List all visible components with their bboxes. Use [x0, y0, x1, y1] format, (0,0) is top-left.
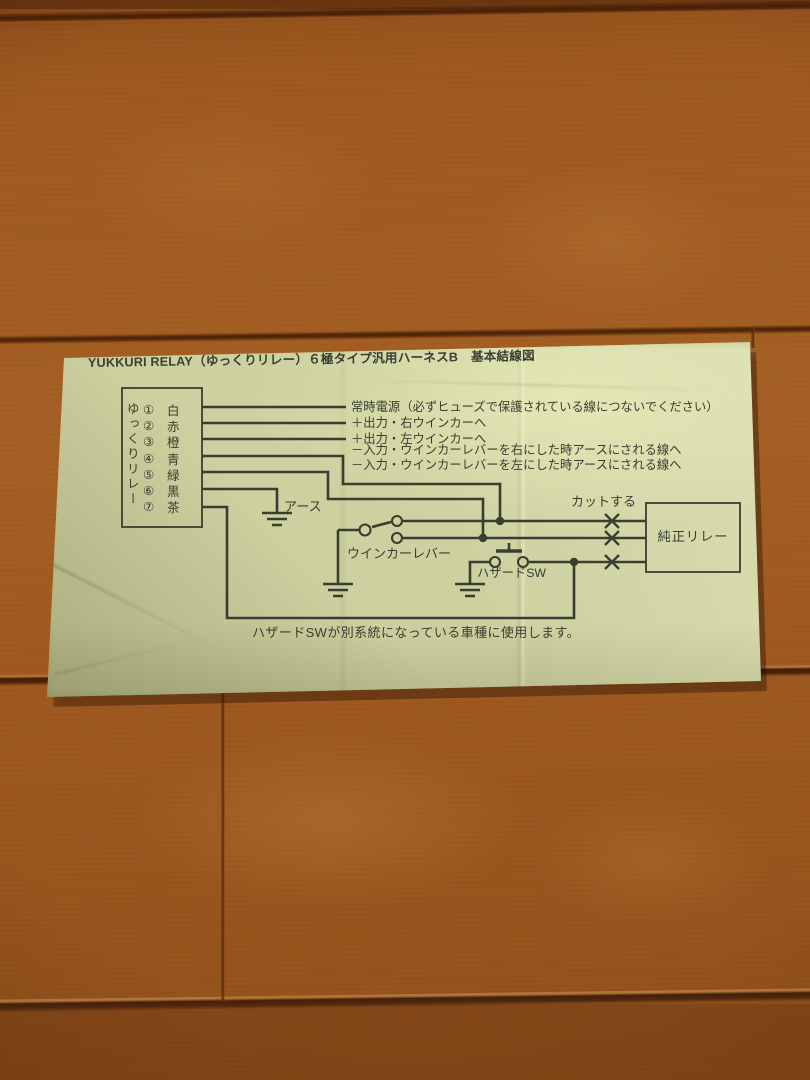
hazard-sw-label: ハザードSW [477, 567, 546, 581]
earth-label: アース [284, 500, 322, 514]
wire-label-input-right: －入力・ウインカーレバーを右にした時アースにされる線へ [351, 444, 681, 458]
junction-dot [496, 517, 504, 525]
wire-label-constant-power: 常時電源（必ずヒューズで保護されている線につないでください） [351, 401, 719, 415]
plank-seam [0, 324, 810, 345]
lever-lower-contact [392, 533, 402, 543]
wire-color-label: 茶 [167, 497, 180, 516]
photo-of-wiring-instruction-sheet: YUKKURI RELAY（ゆっくりリレー）６極タイプ汎用ハーネスB 基本結線図… [0, 0, 810, 1080]
terminal-number: ⑥ [143, 483, 167, 498]
footnote: ハザードSWが別系統になっている車種に使用します。 [252, 626, 580, 640]
relay-unit-vertical-label: ゆっくりリレー [124, 402, 138, 507]
terminal-list: ① 白 ② 赤 ③ 橙 ④ 青 ⑤ 緑 ⑥ 黒 [143, 401, 180, 515]
wire-label-input-left: －入力・ウインカーレバーを左にした時アースにされる線へ [351, 459, 681, 473]
terminal-row: ⑤ 緑 [143, 466, 180, 482]
terminal-number: ② [143, 418, 167, 433]
plank-joint [751, 328, 755, 348]
terminal-row: ② 赤 [143, 417, 180, 433]
lever-ground-symbol [323, 584, 353, 596]
winker-lever-label: ウインカーレバー [347, 547, 451, 561]
terminal-row: ⑥ 黒 [143, 482, 180, 498]
terminal-number: ③ [143, 434, 167, 449]
junction-dot [479, 534, 487, 542]
plank-edge-strip [0, 1004, 810, 1080]
wire-label-output-right: ＋出力・右ウインカーへ [351, 417, 486, 431]
terminal-number: ① [143, 402, 167, 417]
wood-sheen [480, 760, 810, 960]
wire-6-black [202, 489, 277, 513]
terminal-number: ④ [143, 451, 167, 466]
wiring-diagram-svg [44, 340, 766, 702]
terminal-number: ⑦ [143, 499, 167, 514]
lever-upper-contact [392, 516, 402, 526]
hazard-ground-symbol [455, 584, 485, 596]
wood-sheen [420, 130, 800, 350]
lever-arm [372, 522, 391, 527]
wood-sheen [20, 70, 440, 290]
paper-sheet: YUKKURI RELAY（ゆっくりリレー）６極タイプ汎用ハーネスB 基本結線図… [44, 340, 766, 702]
earth-ground-symbol [262, 513, 292, 525]
terminal-row: ④ 青 [143, 450, 180, 466]
lever-pivot-contact [360, 525, 371, 536]
terminal-row: ③ 橙 [143, 434, 180, 450]
terminal-row: ① 白 [143, 401, 180, 417]
terminal-row: ⑦ 茶 [143, 499, 180, 515]
plank-joint [221, 690, 225, 1002]
hazard-pushbutton [496, 543, 522, 551]
oem-relay-label: 純正リレー [646, 530, 740, 545]
terminal-number: ⑤ [143, 467, 167, 482]
cut-label: カットする [571, 495, 636, 509]
junction-dot [570, 558, 578, 566]
